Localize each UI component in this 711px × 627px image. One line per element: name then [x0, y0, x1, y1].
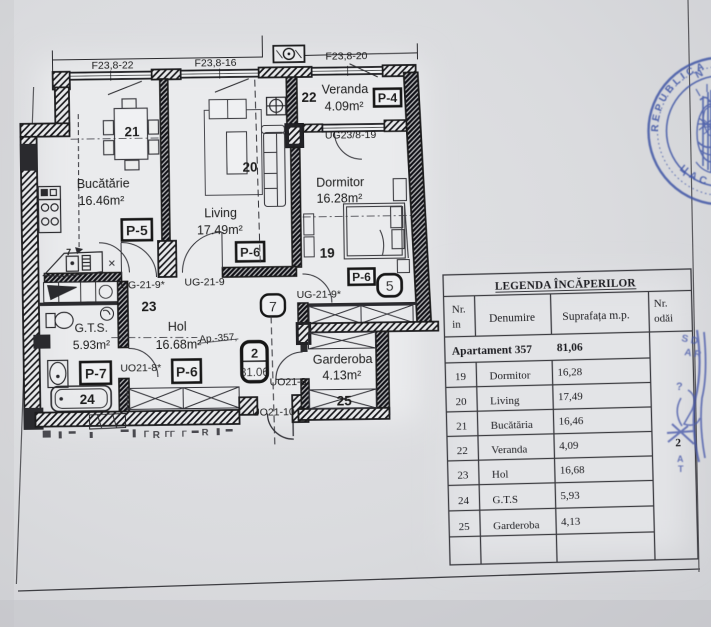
- svg-text:22: 22: [457, 445, 468, 457]
- svg-text:ΓΓ: ΓΓ: [165, 429, 175, 439]
- svg-text:P-7: P-7: [85, 365, 107, 381]
- svg-text:ЦАС: ЦАС: [677, 163, 711, 189]
- svg-text:7: 7: [66, 247, 71, 257]
- svg-text:UG-21-9*: UG-21-9*: [120, 279, 165, 292]
- svg-text:21: 21: [456, 420, 467, 432]
- svg-text:F23,8-20: F23,8-20: [325, 50, 367, 63]
- svg-text:P-4: P-4: [378, 91, 398, 105]
- svg-text:19: 19: [320, 246, 335, 261]
- svg-text:Dormitor: Dormitor: [316, 175, 364, 190]
- svg-text:5.93m²: 5.93m²: [73, 338, 111, 353]
- svg-text:Nr.: Nr.: [452, 303, 466, 315]
- svg-text:81,06: 81,06: [557, 342, 583, 355]
- svg-text:odăi: odăi: [654, 312, 673, 324]
- svg-text:Living: Living: [490, 395, 520, 408]
- svg-text:17,49: 17,49: [558, 391, 584, 404]
- svg-text:P-6: P-6: [352, 270, 371, 284]
- svg-text:F23,8-22: F23,8-22: [91, 59, 133, 72]
- svg-text:Living: Living: [204, 206, 237, 220]
- svg-text:4,09: 4,09: [559, 440, 579, 452]
- svg-text:23: 23: [457, 469, 469, 481]
- svg-text:Garderoba: Garderoba: [493, 519, 540, 532]
- svg-text:UG23/8-19: UG23/8-19: [325, 129, 377, 142]
- svg-text:25: 25: [459, 521, 471, 533]
- svg-text:Bucătăria: Bucătăria: [491, 419, 534, 432]
- svg-text:in: in: [452, 319, 461, 331]
- svg-text:P-5: P-5: [126, 222, 148, 238]
- svg-text:17.49m²: 17.49m²: [197, 223, 243, 238]
- svg-text:UO21-8: UO21-8: [270, 376, 307, 389]
- svg-text:Suprafața m.p.: Suprafața m.p.: [562, 309, 630, 323]
- svg-text:?: ?: [676, 381, 683, 393]
- svg-text:T: T: [678, 464, 684, 474]
- svg-text:R: R: [153, 430, 161, 441]
- svg-text:23: 23: [141, 299, 157, 314]
- svg-text:20: 20: [242, 160, 257, 175]
- svg-text:16,46: 16,46: [558, 415, 584, 428]
- svg-text:2: 2: [675, 437, 681, 449]
- svg-text:A: A: [677, 454, 684, 464]
- svg-text:7: 7: [269, 298, 277, 314]
- svg-text:UG-21-9*: UG-21-9*: [297, 288, 342, 301]
- svg-text:Veranda: Veranda: [322, 82, 369, 97]
- svg-text:5: 5: [386, 278, 394, 294]
- svg-text:81.06: 81.06: [240, 367, 269, 379]
- svg-text:24: 24: [458, 495, 470, 507]
- svg-text:Apartament 357: Apartament 357: [452, 344, 533, 358]
- svg-text:4.09m²: 4.09m²: [325, 99, 364, 114]
- svg-text:UO21-8*: UO21-8*: [120, 362, 161, 375]
- svg-text:R: R: [202, 427, 209, 438]
- svg-text:F23,8-16: F23,8-16: [194, 57, 236, 70]
- svg-text:21: 21: [124, 124, 140, 139]
- svg-text:G.T.S.: G.T.S.: [74, 321, 108, 335]
- svg-text:20: 20: [455, 396, 467, 408]
- svg-text:19: 19: [455, 371, 467, 383]
- svg-text:Hol: Hol: [168, 320, 187, 334]
- svg-text:2: 2: [251, 346, 258, 361]
- svg-text:Nr.: Nr.: [654, 298, 668, 310]
- svg-text:16.46m²: 16.46m²: [78, 193, 124, 208]
- svg-text:Veranda: Veranda: [491, 443, 527, 456]
- svg-text:22: 22: [301, 90, 316, 105]
- svg-text:16.68m²: 16.68m²: [155, 337, 201, 352]
- svg-text:16,28: 16,28: [557, 366, 583, 379]
- svg-text:16,68: 16,68: [560, 464, 586, 477]
- svg-text:P-6: P-6: [176, 363, 198, 379]
- svg-text:Dormitor: Dormitor: [489, 369, 531, 382]
- svg-text:Bucătărie: Bucătărie: [77, 176, 130, 191]
- svg-text:Garderoba: Garderoba: [313, 352, 373, 367]
- svg-text:Hol: Hol: [492, 468, 509, 480]
- svg-text:25: 25: [337, 393, 353, 408]
- svg-text:UG-21-9: UG-21-9: [184, 276, 225, 289]
- svg-text:24: 24: [80, 392, 96, 407]
- svg-text:Denumire: Denumire: [489, 312, 535, 325]
- svg-text:Γ: Γ: [182, 429, 187, 439]
- svg-text:4,13: 4,13: [561, 516, 581, 528]
- svg-text:P-6: P-6: [240, 245, 260, 260]
- svg-text:G.T.S: G.T.S: [492, 494, 518, 507]
- svg-text:5,93: 5,93: [560, 490, 580, 502]
- svg-text:4.13m²: 4.13m²: [322, 368, 361, 383]
- svg-text:Γ: Γ: [144, 429, 150, 439]
